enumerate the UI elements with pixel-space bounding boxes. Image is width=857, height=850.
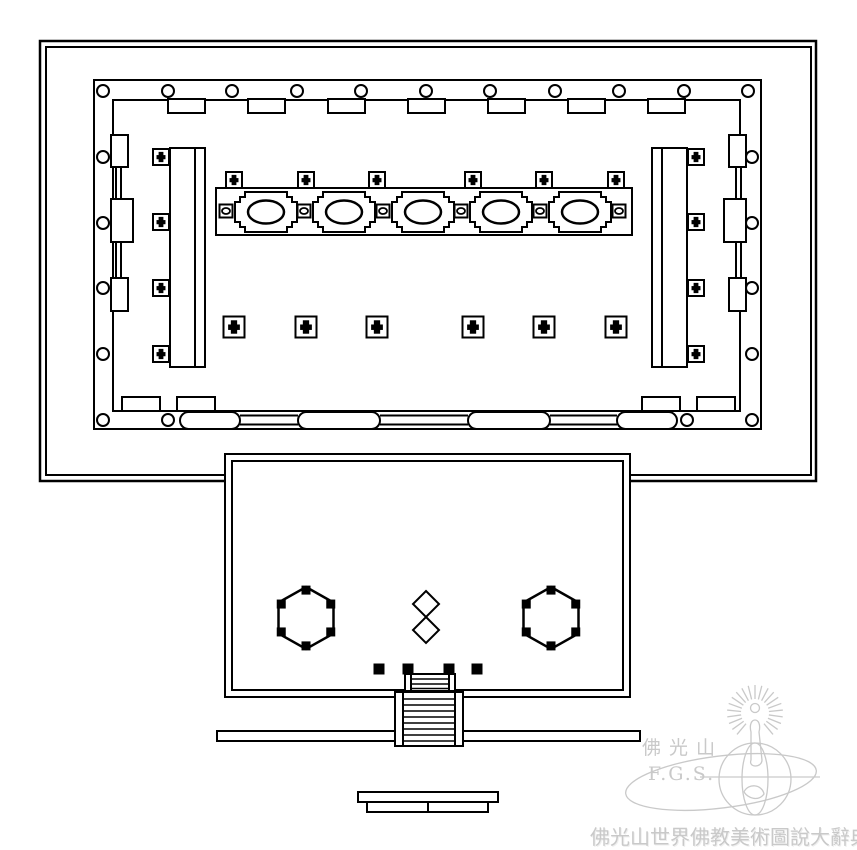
wall-column bbox=[97, 414, 109, 426]
entrance-door bbox=[298, 412, 380, 429]
altar-statue-oval bbox=[248, 201, 284, 224]
wall-column bbox=[742, 85, 754, 97]
halo-ray bbox=[729, 718, 742, 723]
top-wall-opening bbox=[408, 99, 445, 113]
altar-statue-oval bbox=[405, 201, 441, 224]
altar-mini-oval bbox=[379, 208, 387, 214]
halo-ray bbox=[768, 718, 781, 723]
hall-pillar-cross-glyph bbox=[538, 324, 550, 329]
wall-column bbox=[420, 85, 432, 97]
hexagon-corner-dot bbox=[302, 586, 311, 595]
altar-pillar-cross-glyph bbox=[373, 178, 382, 182]
wall-column bbox=[678, 85, 690, 97]
lotus-swirl-icon bbox=[744, 786, 764, 799]
wall-column bbox=[162, 414, 174, 426]
entry-column-dot bbox=[403, 664, 414, 675]
halo-ray bbox=[748, 686, 751, 700]
wall-pier bbox=[111, 199, 133, 242]
wall-column bbox=[484, 85, 496, 97]
platform-pillar-cross-glyph bbox=[692, 155, 701, 159]
hexagon-corner-dot bbox=[277, 627, 286, 636]
halo-ray bbox=[769, 710, 783, 711]
entrance-door bbox=[468, 412, 550, 429]
floor-plan-page: 佛光山 F.G.S. 佛光山世界佛教美術圖說大辭典 bbox=[0, 0, 857, 850]
pier-link bbox=[736, 167, 741, 199]
halo-ray bbox=[727, 710, 741, 711]
top-wall-opening bbox=[248, 99, 285, 113]
altar-mini-oval bbox=[300, 208, 308, 214]
buddha-head-icon bbox=[751, 704, 760, 713]
altar-pillar-cross-glyph bbox=[469, 178, 478, 182]
wall-pier bbox=[111, 135, 128, 167]
wall-column bbox=[613, 85, 625, 97]
halo-rays-icon bbox=[727, 685, 783, 734]
platform-pillar-cross-glyph bbox=[157, 155, 166, 159]
pier-link bbox=[736, 242, 741, 278]
hexagon-corner-dot bbox=[326, 600, 335, 609]
hexagon-corner-dot bbox=[277, 600, 286, 609]
top-wall-opening bbox=[648, 99, 685, 113]
wall-column bbox=[97, 282, 109, 294]
altar-mini-oval bbox=[457, 208, 465, 214]
entry-column-dot bbox=[444, 664, 455, 675]
hexagon-corner-dot bbox=[571, 600, 580, 609]
altar-mini-oval bbox=[536, 208, 544, 214]
wall-pier bbox=[111, 278, 128, 311]
altar-mini-oval bbox=[615, 208, 623, 214]
hexagon-corner-dot bbox=[326, 627, 335, 636]
entrance-door bbox=[180, 412, 240, 429]
bottom-wall-opening bbox=[122, 397, 160, 411]
altar-pillar-cross-glyph bbox=[612, 178, 621, 182]
altar-mini-oval bbox=[222, 208, 230, 214]
wall-pier bbox=[724, 199, 746, 242]
wall-pier bbox=[729, 278, 746, 311]
halo-ray bbox=[729, 703, 742, 708]
hall-pillar-cross-glyph bbox=[610, 324, 622, 329]
entrance-door bbox=[617, 412, 677, 429]
top-wall-opening bbox=[328, 99, 365, 113]
wall-column bbox=[97, 85, 109, 97]
wall-column bbox=[162, 85, 174, 97]
wall-column bbox=[291, 85, 303, 97]
platform-pillar-cross-glyph bbox=[157, 352, 166, 356]
wall-column bbox=[549, 85, 561, 97]
hall-pillar-cross-glyph bbox=[300, 324, 312, 329]
platform-pillar-cross-glyph bbox=[157, 286, 166, 290]
platform-pillar-cross-glyph bbox=[692, 352, 701, 356]
annex-wall-outer bbox=[225, 454, 630, 697]
altar-pillar-cross-glyph bbox=[540, 178, 549, 182]
bottom-wall-opening bbox=[697, 397, 735, 411]
altar-statue-oval bbox=[562, 201, 598, 224]
altar-pillar-cross-glyph bbox=[302, 178, 311, 182]
wall-column bbox=[97, 217, 109, 229]
wall-column bbox=[746, 282, 758, 294]
hexagon-corner-dot bbox=[522, 627, 531, 636]
platform-pillar-cross-glyph bbox=[157, 220, 166, 224]
hall-pillar-cross-glyph bbox=[228, 324, 240, 329]
halo-ray bbox=[769, 715, 783, 717]
altar-statue-oval bbox=[483, 201, 519, 224]
platform-pillar-cross-glyph bbox=[692, 286, 701, 290]
altar-statue-oval bbox=[326, 201, 362, 224]
altar-pillar-cross-glyph bbox=[230, 178, 239, 182]
wall-column bbox=[97, 151, 109, 163]
hexagon-corner-dot bbox=[302, 641, 311, 650]
halo-ray bbox=[758, 686, 761, 700]
hall-pillar-cross-glyph bbox=[371, 324, 383, 329]
fgs-watermark-logo: 佛光山 F.G.S. bbox=[608, 682, 843, 822]
watermark-caption: 佛光山世界佛教美術圖說大辭典 bbox=[590, 825, 857, 849]
hall-pillar-cross-glyph bbox=[467, 324, 479, 329]
wall-column bbox=[97, 348, 109, 360]
bottom-wall-opening bbox=[177, 397, 215, 411]
hexagon-corner-dot bbox=[571, 627, 580, 636]
pier-link bbox=[116, 242, 121, 278]
side-platform bbox=[652, 148, 687, 367]
wall-column bbox=[226, 85, 238, 97]
wall-column bbox=[746, 414, 758, 426]
platform-pillar-cross-glyph bbox=[692, 220, 701, 224]
entry-column-dot bbox=[374, 664, 385, 675]
top-wall-opening bbox=[568, 99, 605, 113]
wall-column bbox=[746, 151, 758, 163]
hexagon-corner-dot bbox=[547, 586, 556, 595]
wall-column bbox=[746, 217, 758, 229]
halo-ray bbox=[727, 715, 741, 717]
wall-column bbox=[355, 85, 367, 97]
wall-pier bbox=[729, 135, 746, 167]
watermark-logo-cn: 佛光山 bbox=[642, 737, 723, 759]
top-wall-opening bbox=[488, 99, 525, 113]
hexagon-corner-dot bbox=[522, 600, 531, 609]
top-wall-opening bbox=[168, 99, 205, 113]
watermark-logo-en: F.G.S. bbox=[648, 763, 715, 785]
side-platform bbox=[170, 148, 205, 367]
bottom-wall-opening bbox=[642, 397, 680, 411]
wall-column bbox=[746, 348, 758, 360]
pier-link bbox=[116, 167, 121, 199]
wall-column bbox=[681, 414, 693, 426]
halo-ray bbox=[768, 703, 781, 708]
main-stair bbox=[395, 692, 463, 746]
approach-platform-upper bbox=[358, 792, 498, 802]
main-hall-wall-inner bbox=[113, 100, 740, 411]
entry-column-dot bbox=[472, 664, 483, 675]
hexagon-corner-dot bbox=[547, 641, 556, 650]
